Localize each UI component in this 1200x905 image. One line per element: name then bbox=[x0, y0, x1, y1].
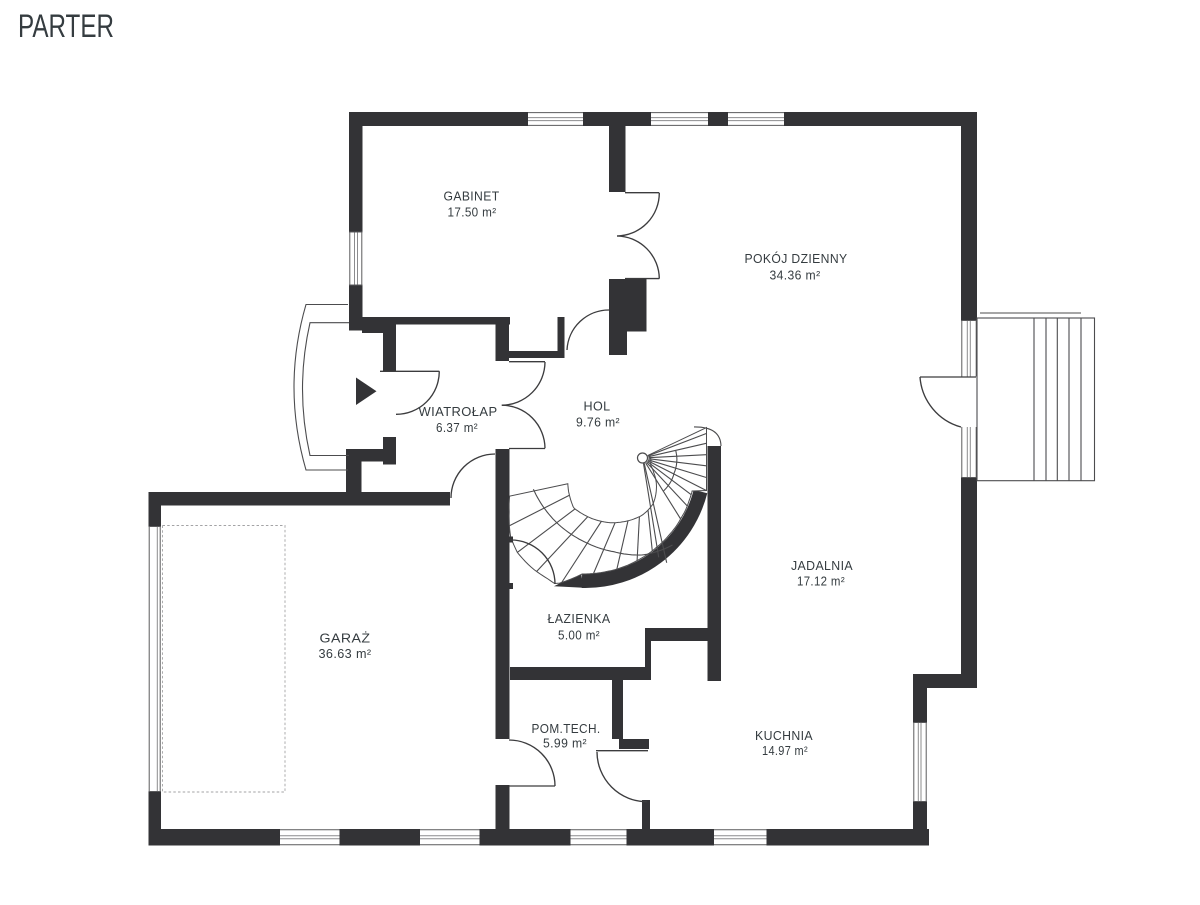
svg-text:PARTER: PARTER bbox=[18, 8, 114, 44]
svg-text:5.00 m²: 5.00 m² bbox=[558, 628, 600, 643]
svg-text:17.50 m²: 17.50 m² bbox=[448, 205, 497, 220]
svg-text:14.97 m²: 14.97 m² bbox=[762, 743, 808, 758]
svg-text:KUCHNIA: KUCHNIA bbox=[755, 728, 813, 743]
svg-text:36.63 m²: 36.63 m² bbox=[319, 646, 372, 661]
svg-text:5.99 m²: 5.99 m² bbox=[543, 736, 587, 751]
svg-text:WIATROŁAP: WIATROŁAP bbox=[419, 404, 498, 419]
svg-text:POKÓJ DZIENNY: POKÓJ DZIENNY bbox=[745, 251, 848, 266]
svg-text:6.37 m²: 6.37 m² bbox=[436, 420, 478, 435]
svg-text:ŁAZIENKA: ŁAZIENKA bbox=[548, 611, 611, 626]
svg-text:GARAŻ: GARAŻ bbox=[320, 631, 371, 646]
svg-text:POM.TECH.: POM.TECH. bbox=[532, 721, 601, 736]
svg-text:HOL: HOL bbox=[584, 399, 611, 414]
svg-text:GABINET: GABINET bbox=[444, 189, 500, 204]
svg-text:17.12 m²: 17.12 m² bbox=[797, 574, 845, 589]
svg-text:9.76 m²: 9.76 m² bbox=[576, 415, 620, 430]
svg-text:JADALNIA: JADALNIA bbox=[791, 558, 853, 573]
svg-text:34.36 m²: 34.36 m² bbox=[770, 268, 821, 283]
